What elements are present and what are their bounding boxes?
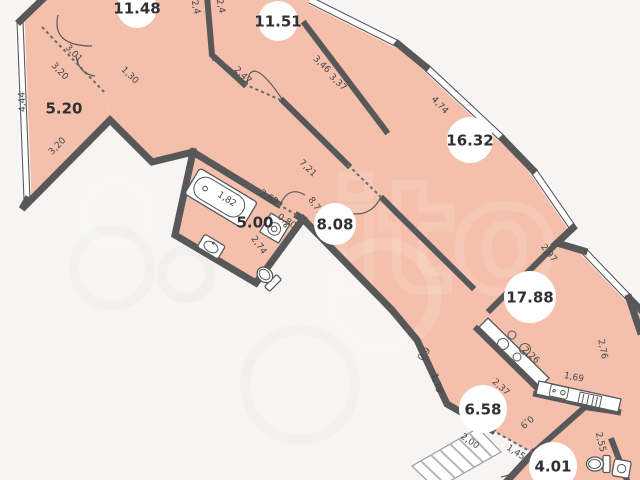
- room-area-label: 11.48: [113, 0, 160, 17]
- lower-balcony-hatch: [412, 428, 501, 480]
- corner-sink-icon: [612, 459, 632, 479]
- room-area-label: 11.51: [254, 12, 301, 30]
- dimension-label: 4,44: [18, 92, 29, 113]
- room-area-label: 6.58: [464, 400, 501, 418]
- room-area-label: 16.32: [446, 131, 493, 149]
- room-area-label: 5.20: [45, 99, 82, 117]
- room-area-label: 8.08: [316, 215, 353, 233]
- room-area-label: 4.01: [534, 457, 571, 475]
- floorplan-page: ito: [0, 0, 640, 480]
- floorplan-svg: ito: [0, 0, 640, 480]
- room-area-label: 5.00: [236, 213, 273, 231]
- room-area-label: 17.88: [506, 288, 553, 306]
- toilet-2-icon: [587, 456, 611, 473]
